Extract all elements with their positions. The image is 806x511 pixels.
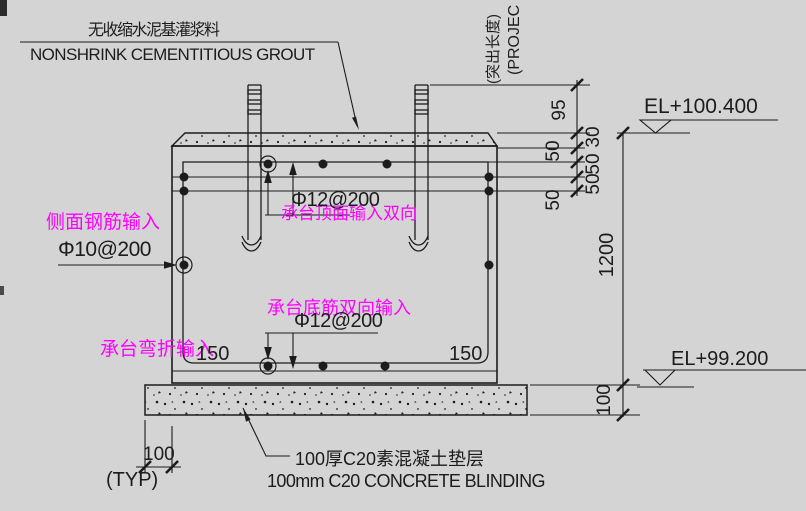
elevation-label-bottom: EL+99.200 [671,348,768,371]
projection-note-cn: (突出长度) [482,0,504,84]
dim-spacing-c: 50 [583,162,605,206]
dim-overhang-value: 100 [143,444,175,466]
projection-note-en: (PROJEC [506,0,528,75]
elevation-mark-bottom [637,370,806,387]
dim-edge-right: 150 [449,343,482,366]
elevation-label-top: EL+100.400 [644,95,758,119]
rebar-layer-lines [172,148,585,371]
dim-edge-left: 150 [196,343,229,366]
blinding-layer [145,385,527,415]
blinding-note-cn: 100厚C20素混凝土垫层 [295,445,484,471]
anchor-bolt-left [242,85,261,251]
dim-spacing-a: 50 [543,129,565,173]
dim-blinding-thickness: 100 [594,376,616,424]
side-rebar-callout: Φ10@200 [58,238,151,262]
grout-note-en: NONSHRINK CEMENTITIOUS GROUT [30,45,315,65]
grip-label-side-rebar[interactable]: 侧面钢筋输入 [46,207,160,234]
anchor-bolt-right [409,85,428,251]
elevation-mark-top [640,120,778,133]
dim-overhang-typ: (TYP) [106,469,158,492]
drawing-canvas: 无收缩水泥基灌浆料 NONSHRINK CEMENTITIOUS GROUT (… [0,0,806,511]
grout-layer [172,133,497,146]
blinding-note-en: 100mm C20 CONCRETE BLINDING [267,471,545,492]
dim-bolt-projection: 95 [549,88,571,132]
dim-cap-height: 1200 [596,225,618,285]
side-rebar-leader [58,261,177,269]
grout-note-cn: 无收缩水泥基灌浆料 [88,16,219,40]
top-rebar-callout: Φ12@200 [291,189,379,212]
dim-spacing-d: 50 [543,178,565,222]
bottom-rebar-callout: Φ12@200 [294,310,382,333]
clipped-ui-artifact [0,0,7,295]
